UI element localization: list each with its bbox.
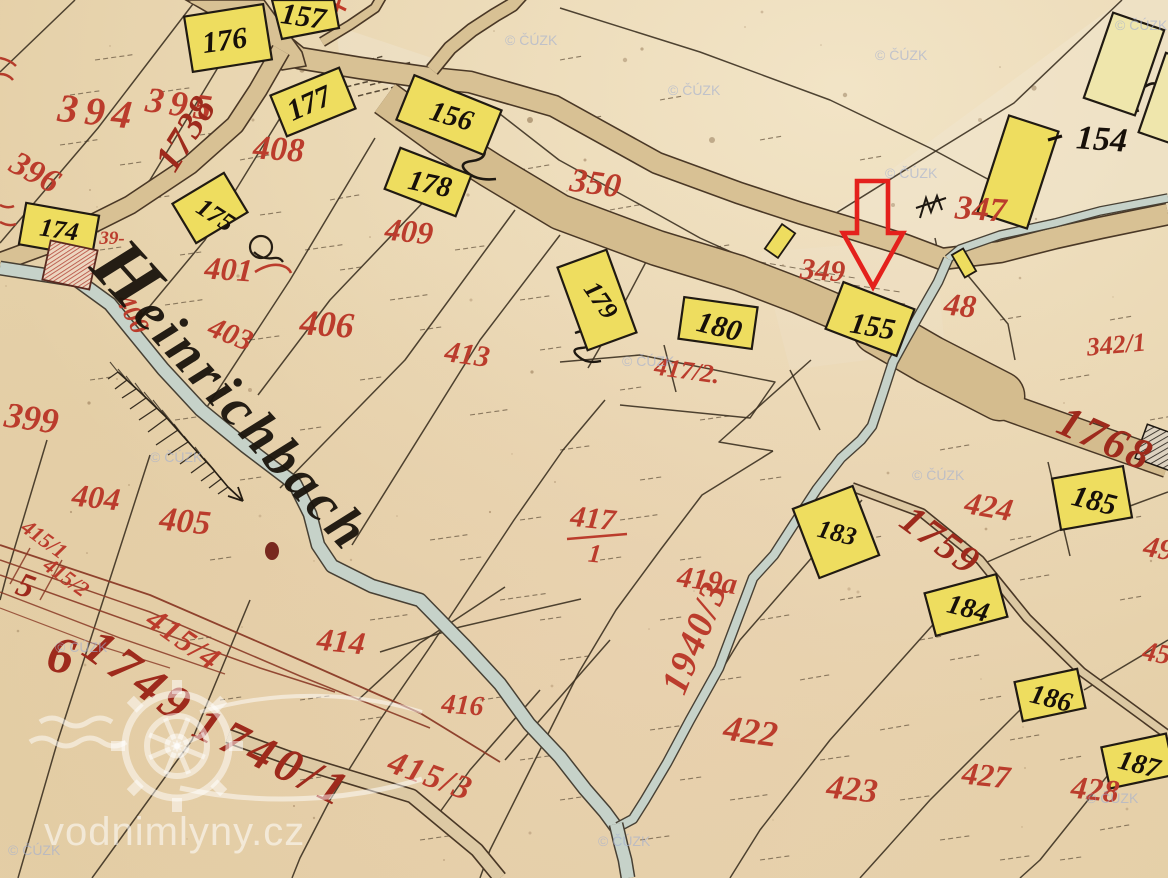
svg-text:414: 414 <box>314 621 366 662</box>
svg-text:© ČÚZK: © ČÚZK <box>1086 790 1139 806</box>
svg-text:413: 413 <box>442 335 492 374</box>
svg-text:404: 404 <box>69 477 121 518</box>
svg-text:174: 174 <box>38 213 81 247</box>
svg-text:406: 406 <box>298 302 356 346</box>
svg-text:350: 350 <box>567 162 624 206</box>
svg-text:© ČÚZK: © ČÚZK <box>1115 17 1168 33</box>
svg-text:© ČÚZK: © ČÚZK <box>885 165 938 181</box>
svg-text:423: 423 <box>824 768 880 810</box>
svg-text:© ČÚZK: © ČÚZK <box>55 639 108 655</box>
svg-text:© ČÚZK: © ČÚZK <box>598 833 651 849</box>
svg-text:176: 176 <box>200 21 249 60</box>
svg-text:154: 154 <box>1075 119 1128 159</box>
svg-text:401: 401 <box>203 249 254 288</box>
svg-text:© ČÚZK: © ČÚZK <box>668 82 721 98</box>
svg-text:422: 422 <box>720 707 780 754</box>
svg-text:© ČÚZK: © ČÚZK <box>505 32 558 48</box>
svg-text:© ČÚZK: © ČÚZK <box>622 353 675 369</box>
svg-text:394: 394 <box>55 85 141 138</box>
svg-text:© ČÚZK: © ČÚZK <box>150 449 203 465</box>
svg-text:© ČÚZK: © ČÚZK <box>912 467 965 483</box>
svg-text:416: 416 <box>440 689 485 723</box>
svg-text:347: 347 <box>953 189 1009 230</box>
svg-text:349: 349 <box>798 252 846 288</box>
svg-text:© ČÚZK: © ČÚZK <box>875 47 928 63</box>
svg-text:427: 427 <box>959 755 1013 796</box>
svg-text:48: 48 <box>941 285 978 324</box>
svg-text:157: 157 <box>279 0 329 36</box>
svg-text:408: 408 <box>251 129 305 170</box>
svg-text:409: 409 <box>382 211 434 252</box>
svg-text:405: 405 <box>157 500 213 542</box>
svg-text:vodnimlyny.cz: vodnimlyny.cz <box>44 810 305 854</box>
svg-text:399: 399 <box>1 394 61 441</box>
svg-text:417: 417 <box>568 500 618 538</box>
svg-text:342/1: 342/1 <box>1084 328 1147 362</box>
